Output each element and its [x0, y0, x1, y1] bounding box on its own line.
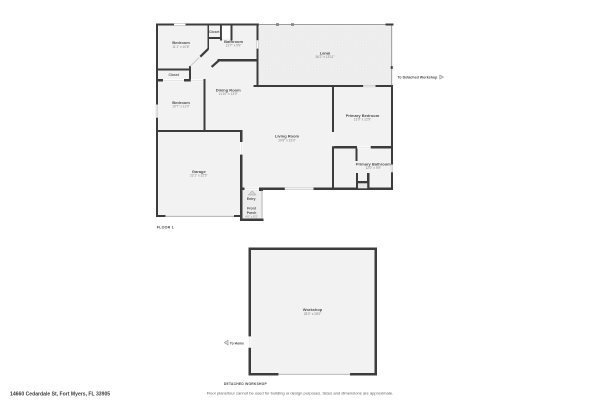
svg-text:28'0" x 28'0": 28'0" x 28'0" — [304, 312, 321, 316]
svg-text:22'1" x 22'5": 22'1" x 22'5" — [190, 174, 207, 178]
svg-text:11'10" x 13'9": 11'10" x 13'9" — [219, 92, 238, 96]
svg-text:Closet: Closet — [169, 73, 180, 77]
svg-text:20'9" x 23'3": 20'9" x 23'3" — [278, 139, 295, 143]
svg-text:Front: Front — [247, 207, 257, 211]
svg-text:10'7" x 11'0": 10'7" x 11'0" — [172, 105, 189, 109]
svg-text:Floor plans/tour cannot be use: Floor plans/tour cannot be used for buil… — [207, 390, 394, 395]
svg-text:14660 Cedardale St, Fort Myers: 14660 Cedardale St, Fort Myers, FL 33905 — [10, 392, 110, 398]
svg-text:12'0" x 9'9": 12'0" x 9'9" — [365, 166, 381, 170]
svg-text:11'1" x 10'8": 11'1" x 10'8" — [172, 45, 189, 49]
svg-text:36'2" x 13'11": 36'2" x 13'11" — [315, 55, 334, 59]
svg-text:13'0" x 12'9": 13'0" x 12'9" — [354, 117, 371, 121]
svg-text:4'6" x 6'3": 4'6" x 6'3" — [245, 215, 258, 219]
svg-text:To Home: To Home — [230, 341, 244, 345]
svg-text:12'7" x 9'9": 12'7" x 9'9" — [226, 44, 242, 48]
svg-text:Entry: Entry — [247, 197, 256, 201]
svg-text:DETACHED WORKSHOP: DETACHED WORKSHOP — [224, 382, 268, 386]
svg-text:Closet: Closet — [209, 30, 220, 34]
svg-text:FLOOR 1: FLOOR 1 — [157, 226, 174, 230]
svg-text:To Detached Workshop: To Detached Workshop — [398, 76, 439, 80]
